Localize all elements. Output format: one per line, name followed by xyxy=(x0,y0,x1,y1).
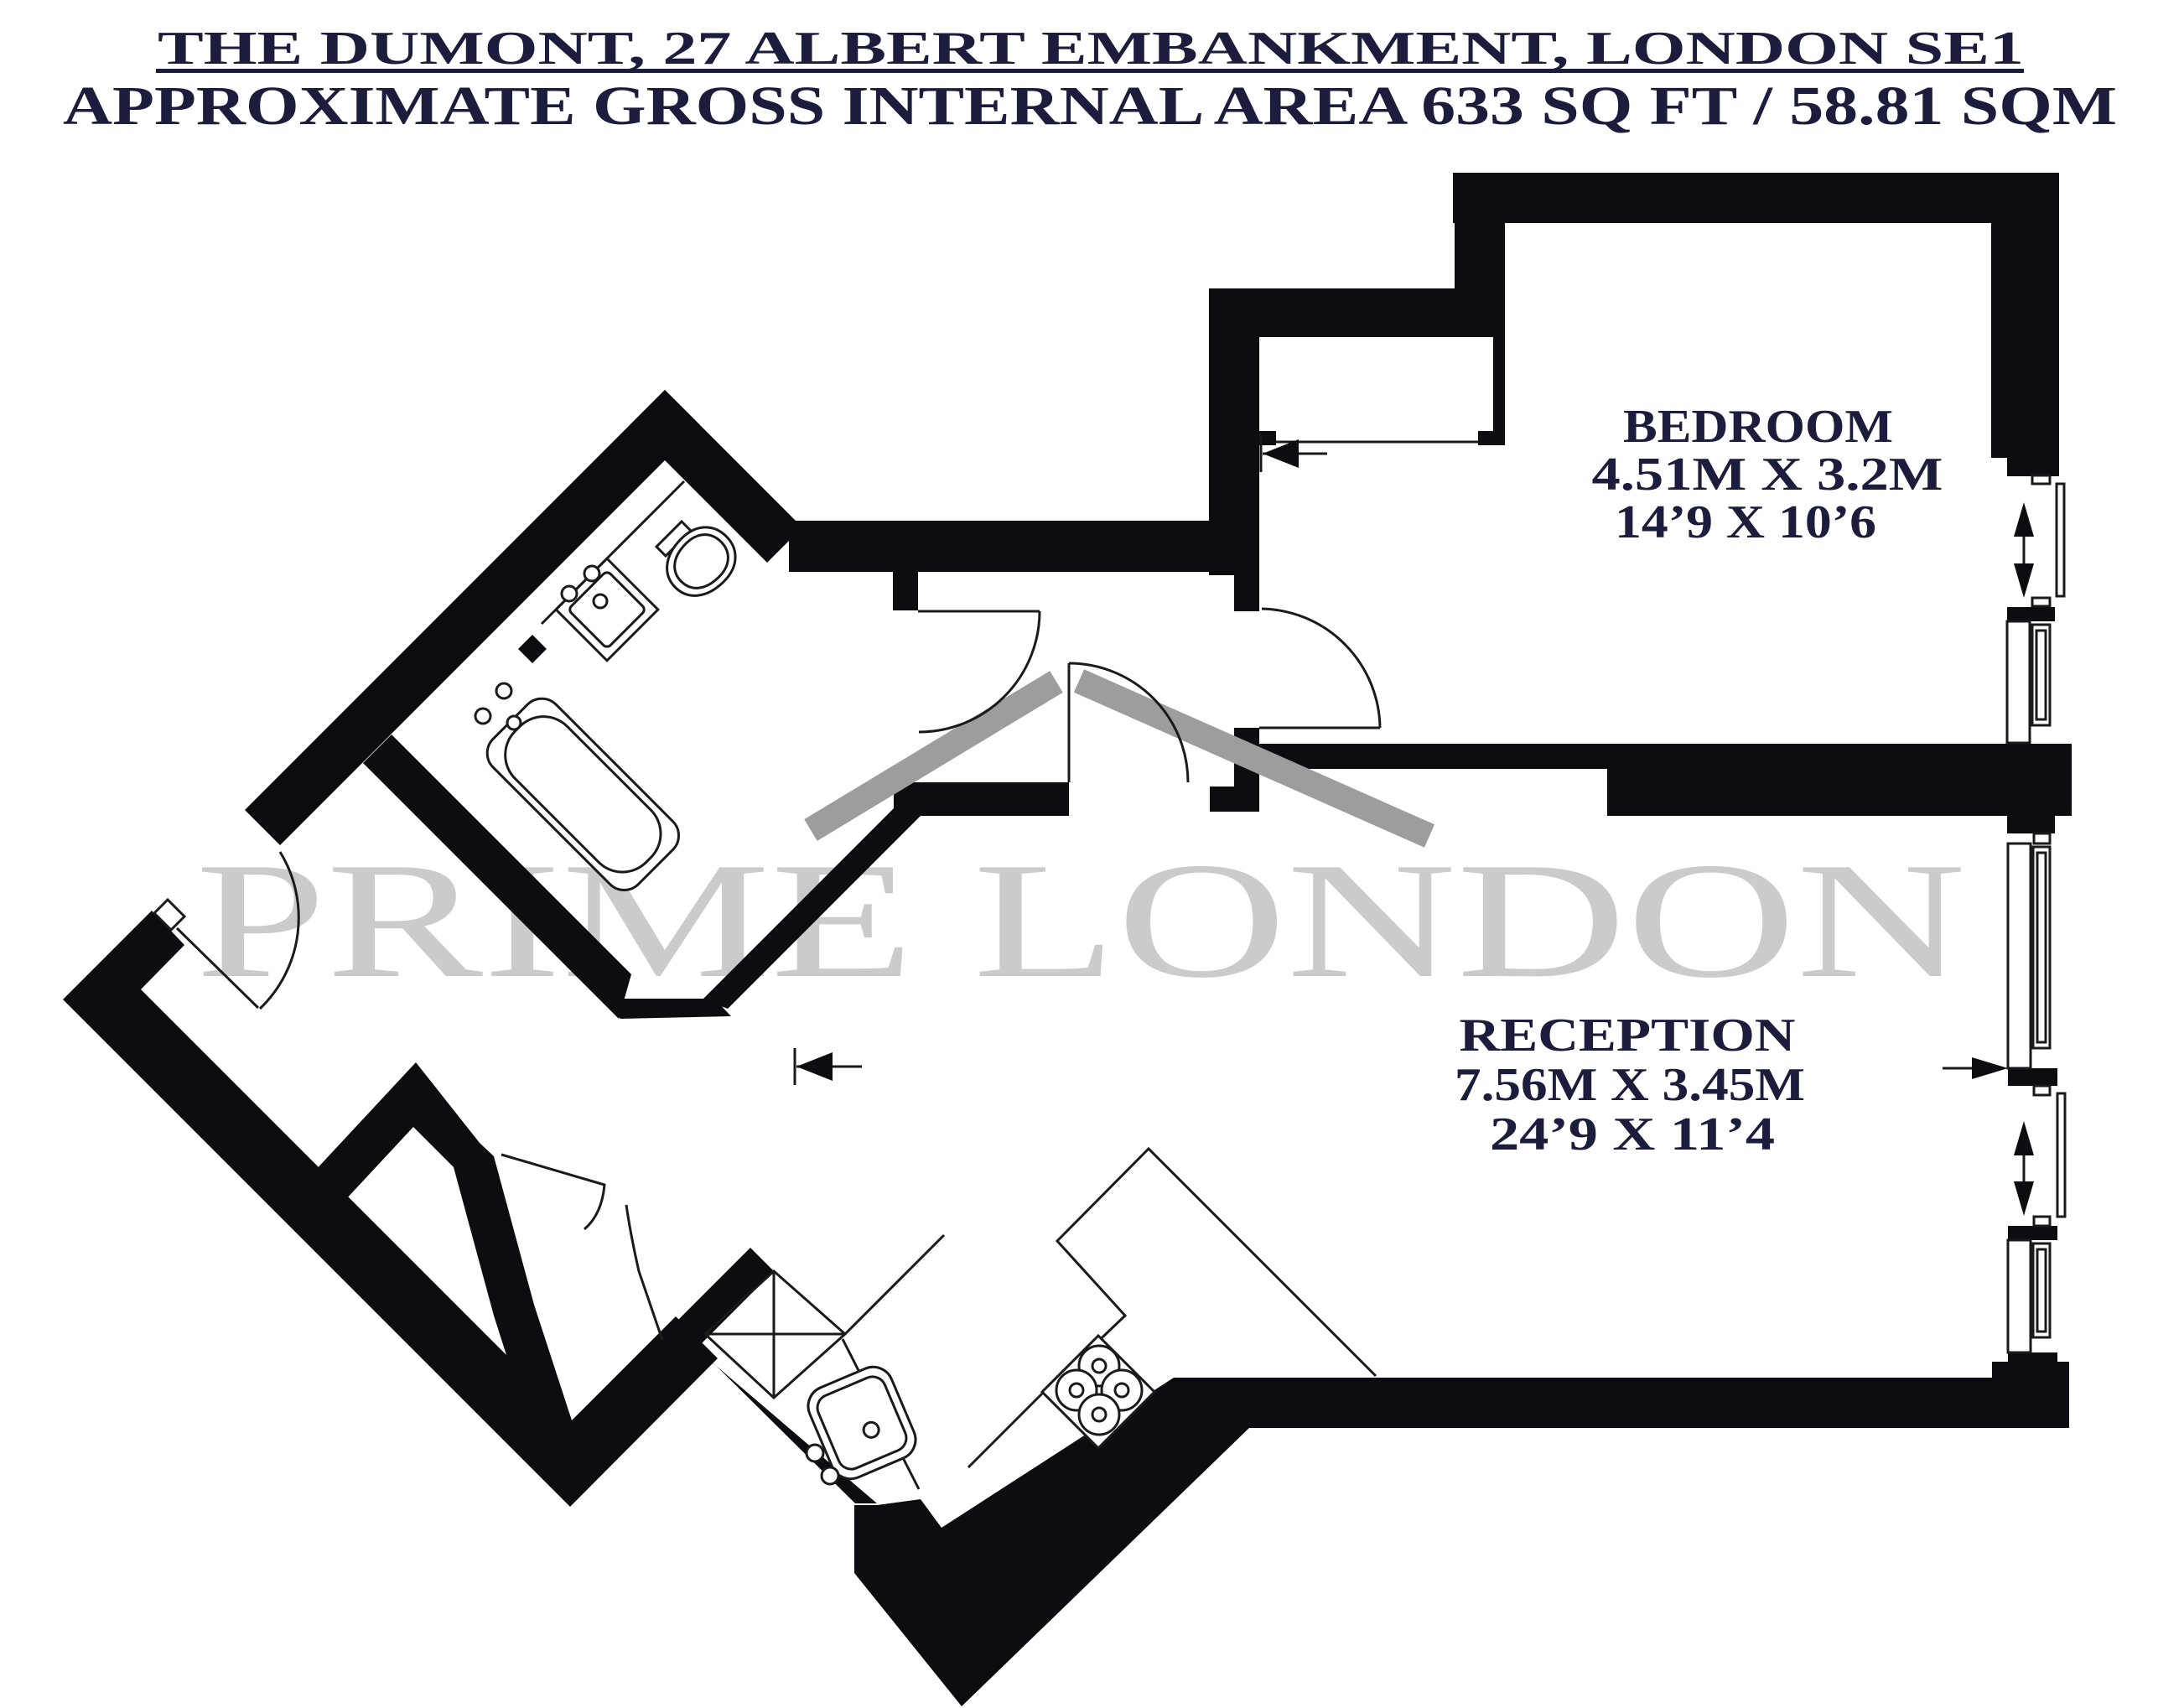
svg-text:7.56M X 3.45M: 7.56M X 3.45M xyxy=(1455,1059,1805,1111)
svg-text:RECEPTION: RECEPTION xyxy=(1460,1010,1796,1062)
svg-text:24’9 X 11’4: 24’9 X 11’4 xyxy=(1490,1108,1775,1160)
svg-text:THE DUMONT, 27 ALBERT EMBANKME: THE DUMONT, 27 ALBERT EMBANKMENT, LONDON… xyxy=(158,23,2024,75)
svg-text:14’9 X 10’6: 14’9 X 10’6 xyxy=(1615,496,1876,548)
svg-text:4.51M X 3.2M: 4.51M X 3.2M xyxy=(1592,449,1943,501)
svg-text:APPROXIMATE GROSS INTERNAL ARE: APPROXIMATE GROSS INTERNAL AREA 633 SQ F… xyxy=(63,75,2117,137)
svg-text:BEDROOM: BEDROOM xyxy=(1623,401,1893,453)
